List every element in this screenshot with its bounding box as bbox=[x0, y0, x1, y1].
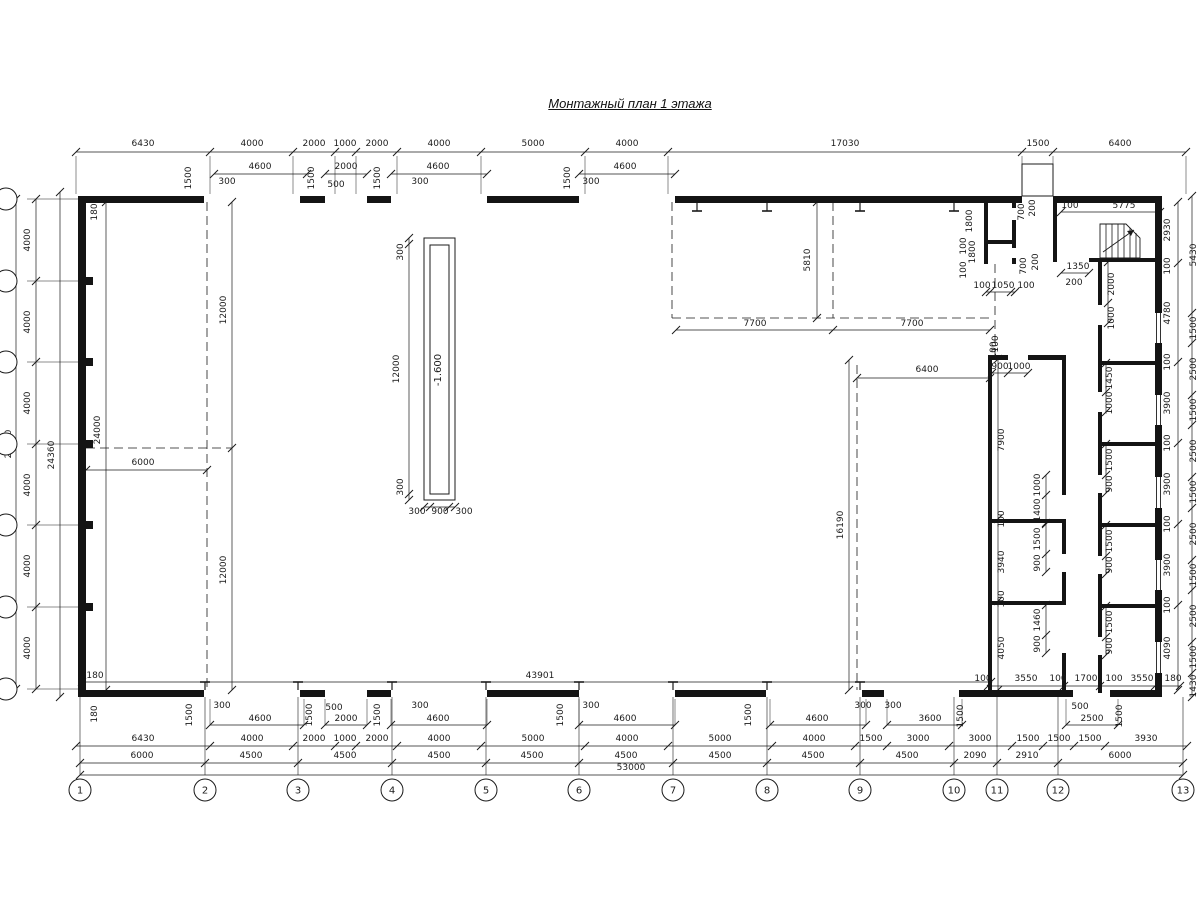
dim-label: 1000 bbox=[1105, 391, 1115, 414]
drawing-title: Монтажный план 1 этажа bbox=[470, 96, 790, 111]
stair-icon bbox=[1100, 224, 1140, 258]
dim-label: 4000 bbox=[23, 310, 33, 333]
dim-label: 1000 bbox=[1107, 306, 1117, 329]
wall bbox=[300, 196, 325, 203]
dim-label: 300 bbox=[884, 701, 901, 711]
dim-label: 4500 bbox=[709, 751, 732, 761]
dim-label: 3000 bbox=[969, 734, 992, 744]
dim-label: 4600 bbox=[806, 714, 829, 724]
window-opening bbox=[1155, 642, 1163, 673]
wall bbox=[367, 690, 391, 697]
wall bbox=[367, 196, 391, 203]
dim-label: 100 bbox=[1163, 257, 1173, 274]
dim-label: 4500 bbox=[896, 751, 919, 761]
dim-label: 4500 bbox=[802, 751, 825, 761]
dim-label: 180 bbox=[90, 203, 100, 220]
wall bbox=[300, 690, 325, 697]
axis-bubble-label: 2 bbox=[202, 786, 208, 797]
dim-label: 5430 bbox=[1189, 243, 1199, 266]
dim-label: 300 bbox=[411, 177, 428, 187]
dim-label: 1460 bbox=[1033, 608, 1043, 631]
axis-bubble bbox=[0, 270, 17, 292]
wall bbox=[675, 690, 766, 697]
dim-label: 100 bbox=[959, 261, 969, 278]
dim-label: 2930 bbox=[1163, 218, 1173, 241]
dim-label: 180 bbox=[1164, 674, 1181, 684]
dim-label: 7700 bbox=[901, 319, 924, 329]
dim-label: 2090 bbox=[964, 751, 987, 761]
dim-label: 1050 bbox=[992, 281, 1015, 291]
wall bbox=[1102, 604, 1155, 608]
dim-label: 300 bbox=[396, 243, 406, 260]
dim-label: 2000 bbox=[303, 734, 326, 744]
dim-label: 1500 bbox=[1017, 734, 1040, 744]
dim-label: 4500 bbox=[428, 751, 451, 761]
dim-label: 300 bbox=[455, 507, 472, 517]
dim-label: 1350 bbox=[1067, 262, 1090, 272]
dim-label: 4000 bbox=[803, 734, 826, 744]
axis-bubble-label: 8 bbox=[764, 786, 770, 797]
dim-label: 1500 bbox=[1115, 704, 1125, 727]
dimension-lines bbox=[12, 148, 1196, 779]
floor-plan-canvas: 6430400020001000200040005000400017030150… bbox=[0, 0, 1200, 900]
dim-label: 1500 bbox=[744, 703, 754, 726]
dim-label: 900 bbox=[1033, 554, 1043, 571]
dim-label: 3600 bbox=[919, 714, 942, 724]
wall bbox=[1012, 203, 1016, 208]
dim-label: 300 bbox=[854, 701, 871, 711]
wall bbox=[1062, 572, 1066, 605]
dim-label: 180 bbox=[86, 671, 103, 681]
window-opening bbox=[1155, 313, 1163, 343]
dim-label: 500 bbox=[325, 703, 342, 713]
dim-label: 3900 bbox=[1163, 391, 1173, 414]
dim-label: 1000 bbox=[1033, 473, 1043, 496]
dim-label: 1500 bbox=[373, 166, 383, 189]
dashed-lines bbox=[86, 202, 995, 690]
axis-bubble-label: 10 bbox=[948, 786, 961, 797]
wall bbox=[1062, 523, 1066, 554]
dim-label: 5810 bbox=[803, 248, 813, 271]
dim-label: 4500 bbox=[615, 751, 638, 761]
dim-label: 700 bbox=[1017, 203, 1027, 220]
dim-label: 6000 bbox=[131, 751, 154, 761]
dim-label: 17030 bbox=[831, 139, 860, 149]
dim-label: 4050 bbox=[997, 636, 1007, 659]
dim-label: 1700 bbox=[1075, 674, 1098, 684]
dim-label: 180 bbox=[90, 705, 100, 722]
dim-label: 4000 bbox=[23, 473, 33, 496]
dim-label: 2500 bbox=[1189, 357, 1199, 380]
wall bbox=[78, 196, 86, 693]
dim-label: 3930 bbox=[1135, 734, 1158, 744]
dim-label: 100 bbox=[973, 281, 990, 291]
axis-bubble bbox=[0, 433, 17, 455]
dim-label: 2000 bbox=[335, 162, 358, 172]
dim-label: 3900 bbox=[1163, 553, 1173, 576]
dim-label: 900 bbox=[1105, 637, 1115, 654]
dim-label: 2500 bbox=[1189, 522, 1199, 545]
dim-label: 900 bbox=[1105, 556, 1115, 573]
dim-label: 5000 bbox=[709, 734, 732, 744]
wall bbox=[487, 690, 579, 697]
dim-label: 4000 bbox=[428, 734, 451, 744]
wall bbox=[984, 203, 988, 264]
dim-label: 4000 bbox=[23, 228, 33, 251]
wall bbox=[1028, 355, 1066, 360]
dim-label: 4600 bbox=[249, 714, 272, 724]
dim-label: 100 bbox=[1061, 201, 1078, 211]
wall bbox=[1098, 493, 1102, 556]
dim-label: 1500 bbox=[1189, 398, 1199, 421]
dim-label: 7700 bbox=[744, 319, 767, 329]
dim-label: 1800 bbox=[968, 240, 978, 263]
dim-label: 1500 bbox=[956, 704, 966, 727]
dim-label: 1500 bbox=[556, 703, 566, 726]
dim-label: 100 bbox=[1105, 674, 1122, 684]
axis-bubble bbox=[0, 514, 17, 536]
dim-label: 1500 bbox=[1105, 448, 1115, 471]
wall bbox=[85, 521, 93, 529]
axis-bubble-label: 13 bbox=[1177, 786, 1190, 797]
dim-label: 4600 bbox=[614, 162, 637, 172]
dim-label: 4500 bbox=[240, 751, 263, 761]
dim-label: 43901 bbox=[526, 671, 555, 681]
dim-label: 1000 bbox=[1008, 362, 1031, 372]
dim-label: 6430 bbox=[132, 139, 155, 149]
axis-bubble-label: 9 bbox=[857, 786, 863, 797]
dim-label: 2000 bbox=[366, 734, 389, 744]
wall bbox=[85, 440, 93, 448]
axis-bubble bbox=[0, 351, 17, 373]
dim-label: 4500 bbox=[521, 751, 544, 761]
dim-label: 100 bbox=[1163, 434, 1173, 451]
dim-label: 1800 bbox=[965, 209, 975, 232]
axis-bubble bbox=[0, 678, 17, 700]
dim-label: 100 bbox=[1163, 515, 1173, 532]
dim-label: 3940 bbox=[997, 550, 1007, 573]
dim-label: 4500 bbox=[334, 751, 357, 761]
dim-label: 4090 bbox=[1163, 636, 1173, 659]
dim-label: 1500 bbox=[373, 703, 383, 726]
wall bbox=[1062, 359, 1066, 495]
dim-label: 1500 bbox=[1048, 734, 1071, 744]
dim-label: 1500 bbox=[1033, 527, 1043, 550]
dim-label: 6400 bbox=[1109, 139, 1132, 149]
dim-label: 900 bbox=[991, 362, 1008, 372]
dim-label: 1400 bbox=[1033, 498, 1043, 521]
dim-label: 100 bbox=[989, 341, 999, 358]
dim-label: 1500 bbox=[1189, 645, 1199, 668]
dim-label: 1500 bbox=[1105, 610, 1115, 633]
wall bbox=[984, 240, 1016, 244]
dim-label: 500 bbox=[327, 180, 344, 190]
dim-label: 1500 bbox=[1189, 563, 1199, 586]
dim-label: 100 bbox=[997, 510, 1007, 527]
dim-label: 1430 bbox=[1189, 674, 1199, 697]
window-opening bbox=[1155, 477, 1163, 508]
dim-label: 12000 bbox=[219, 555, 229, 584]
dim-label: 12000 bbox=[219, 295, 229, 324]
dim-label: 2000 bbox=[366, 139, 389, 149]
dim-label: 2000 bbox=[303, 139, 326, 149]
dim-label: 7900 bbox=[997, 428, 1007, 451]
axis-bubble bbox=[0, 596, 17, 618]
dim-label: 1000 bbox=[334, 734, 357, 744]
dim-label: 300 bbox=[582, 177, 599, 187]
wall bbox=[1062, 653, 1066, 690]
dim-label: 200 bbox=[1028, 199, 1038, 216]
wall bbox=[78, 690, 204, 697]
axis-bubble-label: 6 bbox=[576, 786, 582, 797]
wall bbox=[675, 196, 1022, 203]
dim-label: 1500 bbox=[1189, 316, 1199, 339]
dim-label: 4000 bbox=[23, 391, 33, 414]
dim-label: 2500 bbox=[1189, 439, 1199, 462]
dim-label: 4000 bbox=[241, 139, 264, 149]
dim-label: 1500 bbox=[1027, 139, 1050, 149]
dim-label: 1500 bbox=[184, 166, 194, 189]
dim-label: 6400 bbox=[916, 365, 939, 375]
axis-bubble-label: 12 bbox=[1052, 786, 1065, 797]
wall bbox=[85, 358, 93, 366]
wall bbox=[1110, 690, 1162, 697]
dim-label: 900 bbox=[1033, 635, 1043, 652]
dim-label: 100 bbox=[1049, 674, 1066, 684]
pit-level-label: -1.600 bbox=[433, 354, 444, 386]
axis-bubble bbox=[0, 188, 17, 210]
dim-label: 500 bbox=[1071, 702, 1088, 712]
dim-label: 53000 bbox=[617, 763, 646, 773]
dim-label: 4000 bbox=[428, 139, 451, 149]
dim-label: 1500 bbox=[563, 166, 573, 189]
dim-label: 4780 bbox=[1163, 301, 1173, 324]
dim-label: 1500 bbox=[185, 703, 195, 726]
dim-label: 900 bbox=[1105, 475, 1115, 492]
dim-label: 4000 bbox=[616, 139, 639, 149]
dim-label: 4600 bbox=[427, 162, 450, 172]
wall bbox=[1098, 655, 1102, 693]
wall bbox=[78, 196, 204, 203]
axis-bubble-label: 3 bbox=[295, 786, 301, 797]
window-opening bbox=[1155, 395, 1163, 425]
axis-bubble-label: 1 bbox=[77, 786, 83, 797]
pit-and-porch-outlines bbox=[424, 164, 1053, 500]
dim-label: 1500 bbox=[305, 703, 315, 726]
dimension-labels: 6430400020001000200040005000400017030150… bbox=[4, 139, 1199, 773]
axis-bubble-label: 11 bbox=[991, 786, 1004, 797]
dim-label: 3550 bbox=[1131, 674, 1154, 684]
dim-label: 16190 bbox=[836, 510, 846, 539]
dim-label: 1500 bbox=[860, 734, 883, 744]
dim-label: 2000 bbox=[335, 714, 358, 724]
wall bbox=[1098, 262, 1102, 305]
wall bbox=[1098, 574, 1102, 637]
dim-label: 4600 bbox=[249, 162, 272, 172]
axis-bubble-label: 7 bbox=[670, 786, 676, 797]
dim-label: 1450 bbox=[1105, 366, 1115, 389]
dim-label: 2000 bbox=[1107, 272, 1117, 295]
dim-label: 4000 bbox=[23, 636, 33, 659]
dim-label: 6000 bbox=[1109, 751, 1132, 761]
dim-label: 300 bbox=[411, 701, 428, 711]
dim-label: 4600 bbox=[427, 714, 450, 724]
wall bbox=[862, 690, 884, 697]
wall bbox=[1098, 325, 1102, 392]
wall bbox=[1098, 412, 1102, 475]
drawing-sheet: 6430400020001000200040005000400017030150… bbox=[0, 0, 1200, 900]
dim-label: 12000 bbox=[392, 354, 402, 383]
dim-label: 4000 bbox=[23, 554, 33, 577]
dim-label: 4000 bbox=[616, 734, 639, 744]
wall bbox=[487, 196, 579, 203]
dim-label: 4000 bbox=[241, 734, 264, 744]
dim-label: 100 bbox=[1163, 596, 1173, 613]
dim-label: 900 bbox=[431, 507, 448, 517]
dim-label: 5000 bbox=[522, 734, 545, 744]
dim-label: 1000 bbox=[334, 139, 357, 149]
dim-label: 3000 bbox=[907, 734, 930, 744]
wall bbox=[1102, 361, 1155, 365]
dim-label: 5000 bbox=[522, 139, 545, 149]
axis-bubble-label: 5 bbox=[483, 786, 489, 797]
dim-label: 4600 bbox=[614, 714, 637, 724]
dim-label: 2910 bbox=[1016, 751, 1039, 761]
wall bbox=[1012, 258, 1016, 264]
dim-label: 5775 bbox=[1113, 201, 1136, 211]
dim-label: 100 bbox=[1017, 281, 1034, 291]
outline-rect bbox=[1022, 164, 1053, 196]
dim-label: 3900 bbox=[1163, 472, 1173, 495]
wall bbox=[1155, 196, 1162, 697]
wall bbox=[959, 690, 1073, 697]
dim-label: 300 bbox=[213, 701, 230, 711]
dim-label: 300 bbox=[408, 507, 425, 517]
dim-label: 100 bbox=[997, 590, 1007, 607]
axis-bubble-label: 4 bbox=[389, 786, 395, 797]
stair-arrowhead bbox=[1127, 230, 1134, 236]
dim-label: 100 bbox=[1163, 353, 1173, 370]
dim-label: 2500 bbox=[1189, 604, 1199, 627]
dim-label: 200 bbox=[1065, 278, 1082, 288]
wall bbox=[1089, 258, 1155, 262]
dim-label: 100 bbox=[974, 674, 991, 684]
dim-label: 300 bbox=[396, 478, 406, 495]
dim-label: 1500 bbox=[307, 166, 317, 189]
dim-label: 1500 bbox=[1079, 734, 1102, 744]
dim-label: 24360 bbox=[47, 440, 57, 469]
dim-label: 2500 bbox=[1081, 714, 1104, 724]
dim-label: 300 bbox=[582, 701, 599, 711]
wall bbox=[1102, 523, 1155, 527]
dim-label: 300 bbox=[218, 177, 235, 187]
window-opening bbox=[1155, 560, 1163, 590]
dim-label: 3550 bbox=[1015, 674, 1038, 684]
dim-label: 200 bbox=[1031, 253, 1041, 270]
dim-label: 24000 bbox=[93, 415, 103, 444]
dim-label: 6430 bbox=[132, 734, 155, 744]
wall bbox=[1102, 442, 1155, 446]
wall bbox=[85, 277, 93, 285]
dim-label: 1500 bbox=[1189, 480, 1199, 503]
dim-label: 1500 bbox=[1105, 529, 1115, 552]
wall bbox=[1053, 203, 1057, 262]
wall bbox=[85, 603, 93, 611]
dim-label: 6000 bbox=[132, 458, 155, 468]
dim-label: 700 bbox=[1019, 257, 1029, 274]
